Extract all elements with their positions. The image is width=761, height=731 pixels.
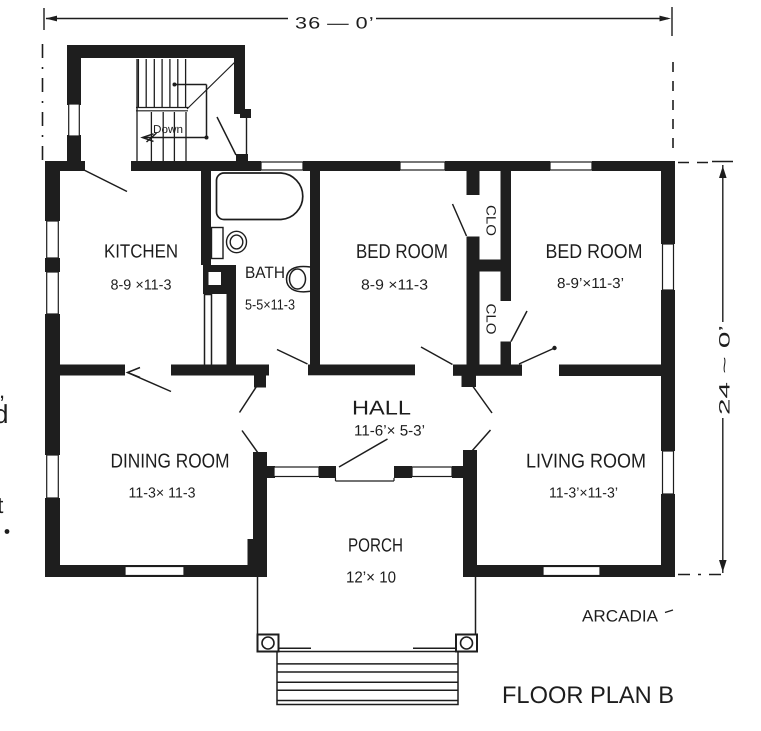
svg-text:BED ROOM: BED ROOM <box>356 241 448 263</box>
svg-text:FLOOR PLAN B: FLOOR PLAN B <box>502 682 674 709</box>
svg-text:d: d <box>0 399 8 429</box>
svg-text:11-6’× 5-3’: 11-6’× 5-3’ <box>354 423 425 440</box>
svg-text:Down: Down <box>153 124 183 136</box>
svg-text:8-9 ×11-3: 8-9 ×11-3 <box>361 278 428 294</box>
svg-text:11-3’×11-3’: 11-3’×11-3’ <box>549 486 618 502</box>
svg-text:CLO: CLO <box>484 304 499 335</box>
svg-text:KITCHEN: KITCHEN <box>104 242 178 263</box>
svg-text:24 ~ 0’: 24 ~ 0’ <box>717 325 734 415</box>
svg-text:BATH: BATH <box>245 264 285 282</box>
svg-text:8-9’×11-3’: 8-9’×11-3’ <box>557 276 624 292</box>
svg-text:DINING ROOM: DINING ROOM <box>111 451 230 473</box>
svg-text:PORCH: PORCH <box>348 536 403 557</box>
svg-text:HALL: HALL <box>352 398 411 420</box>
svg-text:11-3× 11-3: 11-3× 11-3 <box>129 486 196 502</box>
svg-text:36 — 0’: 36 — 0’ <box>295 15 375 33</box>
svg-text:12’× 10: 12’× 10 <box>346 570 396 587</box>
svg-text:CLO: CLO <box>484 205 499 236</box>
svg-text:BED ROOM: BED ROOM <box>546 241 643 263</box>
svg-text:8-9 ×11-3: 8-9 ×11-3 <box>111 278 172 294</box>
svg-text:ARCADIA: ARCADIA <box>582 608 658 626</box>
svg-text:LIVING ROOM: LIVING ROOM <box>526 451 646 473</box>
svg-text:5-5×11-3: 5-5×11-3 <box>245 298 295 314</box>
